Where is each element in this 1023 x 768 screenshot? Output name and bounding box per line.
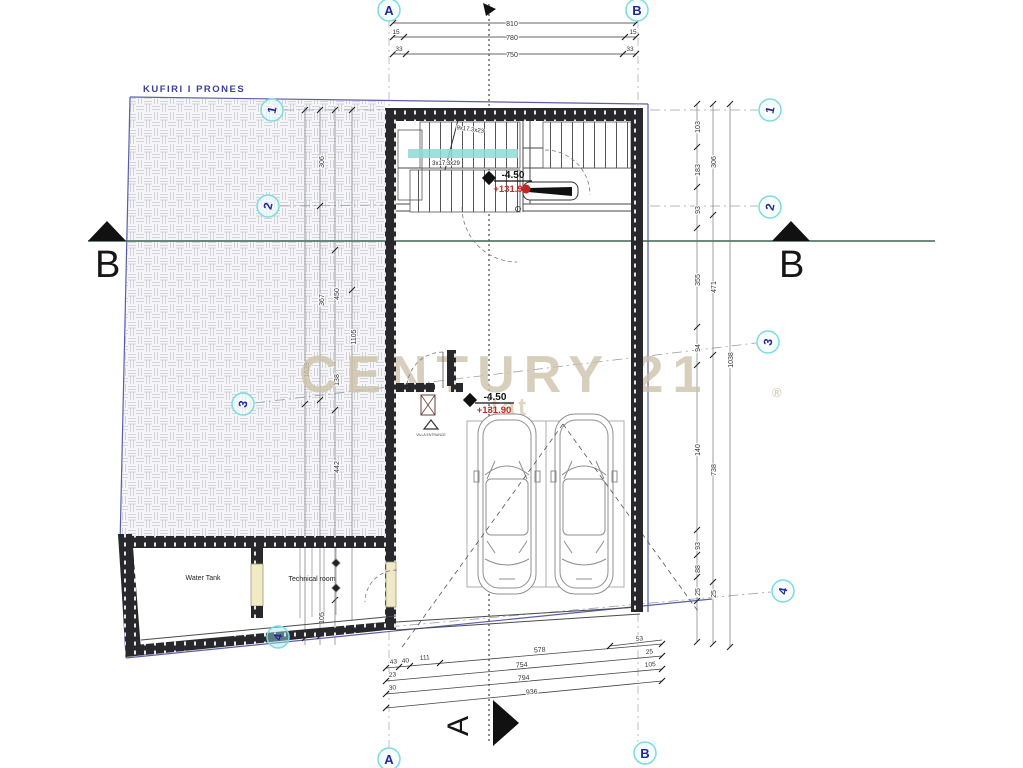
- dim-left-7: 105: [319, 612, 326, 624]
- grid-bubble-right-4: 4: [772, 580, 794, 602]
- grid-bubble-right-2: 2: [759, 196, 781, 218]
- dim-right-8: 25: [695, 588, 702, 596]
- svg-text:+131.9: +131.9: [493, 184, 522, 195]
- water-tank-label: Water Tank: [185, 575, 221, 582]
- dim-right-7: 88: [695, 565, 702, 573]
- svg-text:B: B: [779, 244, 804, 286]
- dim-bottom-4: 578: [534, 647, 546, 655]
- dim-right-5: 140: [695, 444, 702, 456]
- svg-text:B: B: [640, 746, 649, 761]
- dim-right-6: 93: [695, 542, 702, 550]
- svg-text:A: A: [384, 3, 394, 18]
- watermark-registered: ®: [772, 385, 782, 400]
- grid-bubble-left-4: 4: [267, 626, 289, 648]
- slope-lines: [400, 424, 700, 650]
- dim-bottom-6: 754: [516, 662, 528, 670]
- dim-left-5: 442: [334, 461, 341, 473]
- grid-bubble-left-2: 2: [257, 195, 279, 217]
- stair-highlight: [408, 149, 518, 158]
- section-marker-b-right: B: [772, 221, 810, 286]
- grid-bubble-bottom-b: B: [634, 742, 656, 764]
- insulated-wall-detail: [523, 182, 578, 200]
- dim-top-inner: 750: [506, 52, 518, 59]
- boundary-label: KUFIRI I PRONES: [143, 84, 245, 95]
- dim-bottom-2: 40: [402, 657, 410, 665]
- dim-bottom-8: 30: [389, 684, 397, 692]
- stair-label-lower: 3x17.3x29: [432, 161, 460, 167]
- dim-bottom-5: 23: [389, 671, 397, 679]
- svg-text:+131.90: +131.90: [477, 405, 512, 416]
- dim-top-middle: 780: [506, 35, 518, 42]
- grid-bubble-left-1: 1: [261, 99, 283, 121]
- dim-left-1: 367: [319, 294, 326, 306]
- svg-text:B: B: [632, 3, 641, 18]
- grid-bubble-right-3: 3: [757, 331, 779, 353]
- dim-bottom-7: 25: [646, 648, 654, 656]
- floor-plan-drawing: 810 15 780 15 33 750 33 306 367 1639 450…: [0, 0, 1023, 768]
- dim-top-off-a: 33: [395, 46, 403, 53]
- dim-top-off-b: 33: [626, 46, 634, 53]
- dim-right-9: 306: [711, 156, 718, 168]
- dim-bottom-11: 936: [526, 689, 538, 697]
- dim-right-13: 1038: [728, 352, 735, 368]
- garage-side-door-yellow: [386, 562, 396, 607]
- car-right: [551, 414, 617, 594]
- grid-bubble-top-b: B: [626, 0, 648, 21]
- dim-left-3: 450: [334, 288, 341, 300]
- dim-top-total: 810: [506, 21, 518, 28]
- grid-bubble-left-3: 3: [232, 393, 254, 415]
- section-marker-a-bottom: A: [442, 700, 519, 746]
- dim-bottom-0: 53: [636, 635, 644, 643]
- dim-right-1: 183: [695, 164, 702, 176]
- dim-top-side-a: 15: [392, 29, 400, 36]
- entrance-label: VILLA ENTRANCE: [416, 433, 446, 437]
- dim-bottom-3: 111: [420, 654, 431, 662]
- entrance-triangle-icon: [424, 420, 438, 429]
- dim-left-0: 306: [319, 156, 326, 168]
- section-marker-b-left: B: [88, 221, 126, 286]
- technical-room-label: Technical room: [288, 576, 335, 583]
- dim-right-0: 103: [695, 121, 702, 133]
- grid-bubble-bottom-a: A: [378, 748, 400, 768]
- dim-bottom-1: 43: [390, 658, 398, 666]
- annex-walls: [118, 534, 396, 657]
- dim-left-6: 1105: [351, 329, 358, 344]
- grid-bubble-right-1: 1: [759, 99, 781, 121]
- terrace-hatch: [121, 98, 385, 540]
- svg-text:-4.50: -4.50: [484, 392, 507, 403]
- dim-right-12: 25: [711, 590, 718, 598]
- floor-plan-canvas: 810 15 780 15 33 750 33 306 367 1639 450…: [0, 0, 1023, 768]
- dim-right-2: 93: [695, 206, 702, 214]
- grid-bubble-top-a: A: [378, 0, 400, 21]
- dim-right-10: 471: [711, 281, 718, 293]
- dim-right-3: 355: [695, 274, 702, 286]
- car-left: [474, 414, 540, 594]
- svg-text:A: A: [442, 716, 475, 736]
- dim-right-11: 738: [711, 464, 718, 476]
- dim-bottom-9: 794: [518, 675, 530, 683]
- dim-top-side-b: 15: [629, 29, 637, 36]
- annex-door-yellow: [251, 564, 263, 606]
- svg-text:-4.50: -4.50: [502, 170, 525, 181]
- dim-bottom-10: 105: [645, 661, 657, 669]
- svg-text:B: B: [95, 244, 120, 286]
- svg-text:A: A: [384, 752, 394, 767]
